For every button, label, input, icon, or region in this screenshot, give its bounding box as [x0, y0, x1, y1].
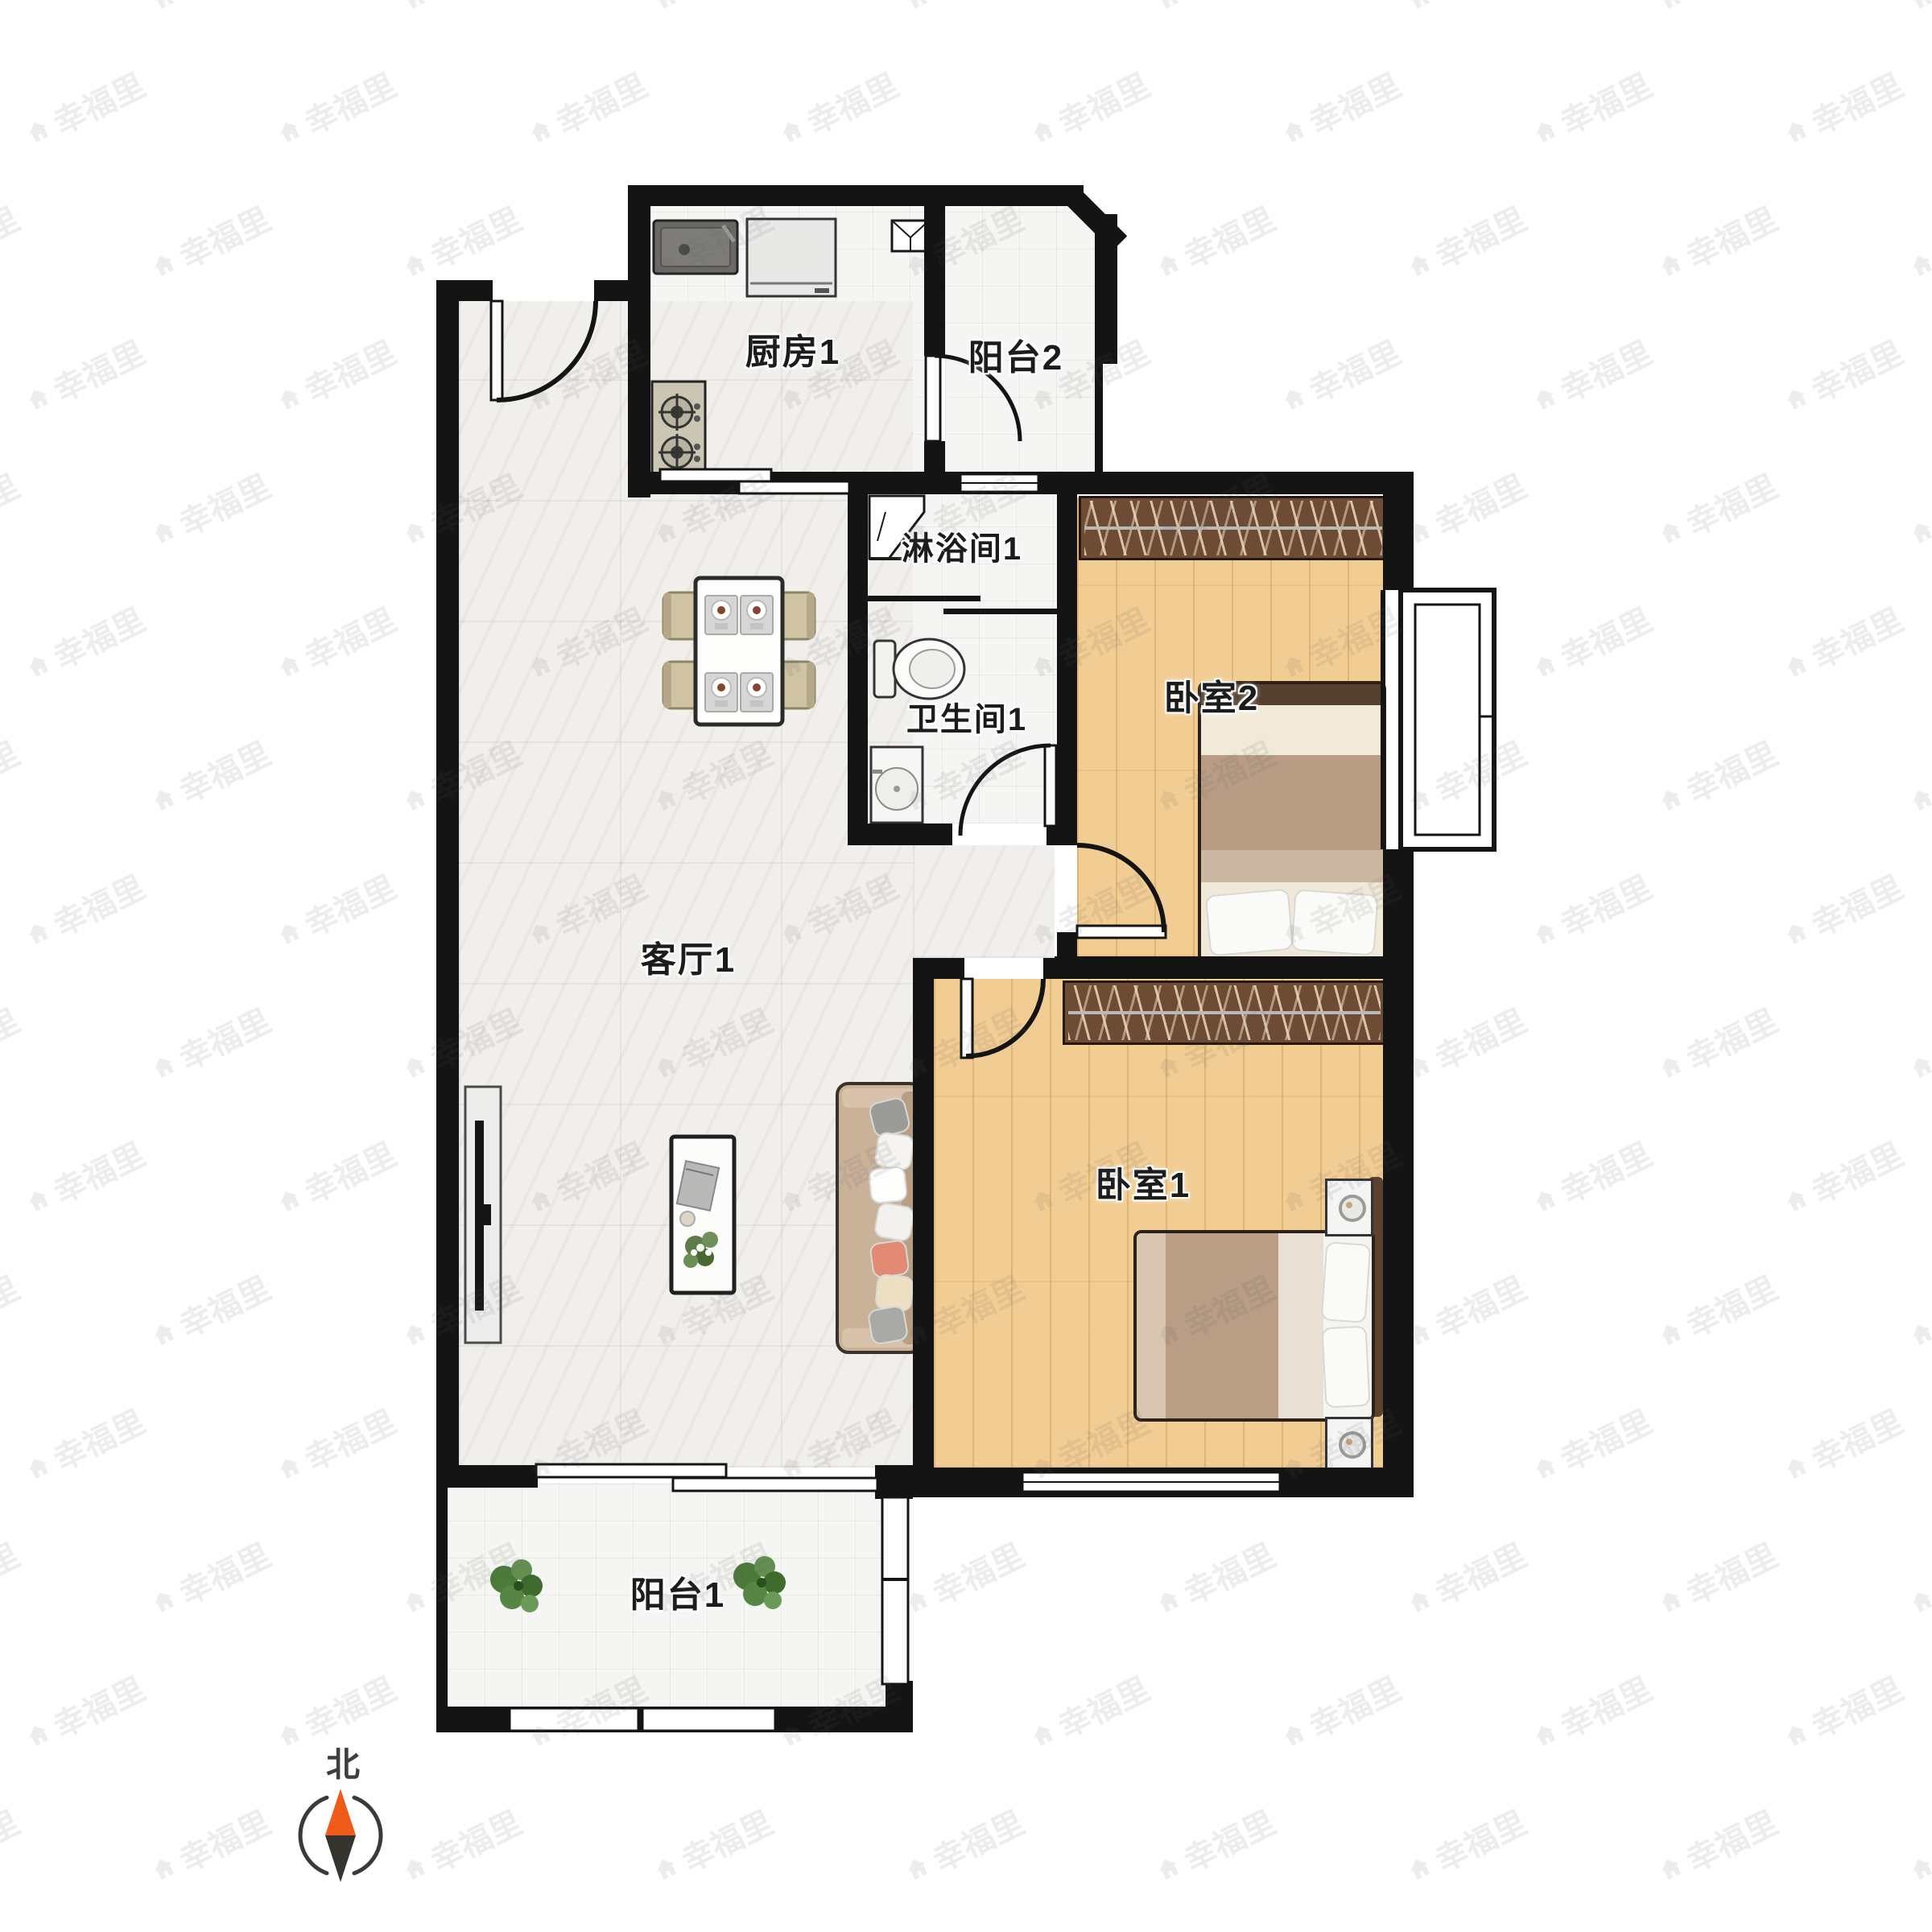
bed-pillow	[1205, 889, 1294, 957]
house-icon	[1654, 1852, 1686, 1885]
house-icon	[524, 115, 556, 147]
watermark-tile: 幸福里	[1398, 460, 1533, 558]
watermark-tile: 幸福里	[268, 327, 402, 424]
house-icon	[22, 382, 54, 415]
watermark-tile: 幸福里	[1273, 1663, 1407, 1761]
watermark-text: 幸福里	[1677, 728, 1784, 812]
nightstand-knob-dot	[1346, 1439, 1352, 1445]
watermark-text: 幸福里	[1928, 193, 1932, 278]
wall-balcony2-right	[1095, 214, 1117, 364]
wall-bedrooms-divider	[1055, 956, 1414, 979]
house-icon	[398, 783, 431, 815]
watermark-tile: 幸福里	[1147, 1529, 1282, 1627]
watermark-text: 幸福里	[1174, 0, 1282, 10]
house-icon	[1026, 115, 1059, 147]
wall-balcony1-bottom	[436, 1707, 913, 1732]
watermark-text: 幸福里	[1426, 460, 1533, 545]
watermark-text: 幸福里	[1426, 193, 1533, 278]
watermark-tile: 幸福里	[1022, 60, 1156, 157]
watermark-text: 幸福里	[0, 193, 27, 278]
nightstand	[1325, 1179, 1373, 1236]
watermark-text: 幸福里	[421, 1797, 528, 1881]
house-icon	[22, 917, 54, 949]
wall-living-bottom-corner	[875, 1465, 913, 1499]
house-icon	[22, 1451, 54, 1484]
house-icon	[1403, 783, 1435, 815]
watermark-tile: 幸福里	[770, 60, 905, 157]
watermark-tile: 幸福里	[645, 0, 779, 24]
house-icon	[1529, 650, 1561, 682]
house-icon	[1780, 917, 1812, 949]
watermark-tile: 幸福里	[0, 193, 27, 291]
house-icon	[1905, 516, 1932, 548]
watermark-tile: 幸福里	[1649, 728, 1784, 825]
watermark-text: 幸福里	[170, 995, 277, 1080]
house-icon	[147, 1852, 180, 1885]
watermark-tile: 幸福里	[1775, 327, 1909, 424]
compass-needle-north	[325, 1789, 356, 1835]
watermark-tile: 幸福里	[268, 60, 402, 157]
house-icon	[1905, 783, 1932, 815]
watermark-tile: 幸福里	[142, 1529, 277, 1627]
house-icon	[1780, 1451, 1812, 1484]
watermark-text: 幸福里	[1802, 1396, 1909, 1480]
watermark-text: 幸福里	[0, 1262, 27, 1347]
wall-bathroom-bottom-left	[848, 824, 952, 845]
watermark-tile: 幸福里	[142, 1262, 277, 1360]
watermark-text: 幸福里	[1677, 995, 1784, 1080]
watermark-tile: 幸福里	[1901, 728, 1932, 825]
watermark-text: 幸福里	[547, 60, 654, 144]
room-label-bathroom: 卫生间1	[906, 693, 1027, 740]
watermark-tile: 幸福里	[1524, 327, 1658, 424]
watermark-text: 幸福里	[672, 0, 779, 10]
watermark-text: 幸福里	[1300, 327, 1407, 411]
room-label-kitchen: 厨房1	[745, 323, 840, 374]
watermark-tile: 幸福里	[1901, 193, 1932, 291]
watermark-tile: 幸福里	[0, 995, 27, 1092]
compass-ring	[354, 1798, 381, 1873]
watermark-tile: 幸福里	[1901, 1262, 1932, 1360]
house-icon	[1403, 249, 1435, 281]
watermark-text: 幸福里	[1049, 60, 1156, 144]
watermark-text: 幸福里	[1928, 1262, 1932, 1347]
watermark-text: 幸福里	[44, 327, 151, 411]
house-icon	[1905, 1051, 1932, 1083]
watermark-text: 幸福里	[672, 1797, 779, 1881]
house-icon	[1403, 0, 1435, 14]
bedroom1-wardrobe	[1063, 980, 1386, 1045]
watermark-tile: 幸福里	[142, 1797, 277, 1894]
watermark-tile: 幸福里	[17, 1663, 151, 1761]
house-icon	[273, 382, 305, 415]
watermark-tile: 幸福里	[0, 1797, 27, 1894]
house-icon	[1278, 382, 1310, 415]
watermark-text: 幸福里	[1928, 728, 1932, 812]
house-icon	[1529, 1184, 1561, 1216]
house-icon	[775, 115, 807, 147]
watermark-text: 幸福里	[295, 1129, 402, 1213]
wall-kitchen-balcony2-stub	[924, 441, 945, 473]
bedroom1-bed	[1133, 1230, 1375, 1422]
house-icon	[1152, 249, 1184, 281]
watermark-tile: 幸福里	[17, 1129, 151, 1226]
wall-right-upper	[1383, 483, 1414, 590]
wardrobe-rail	[1084, 526, 1382, 530]
wardrobe-rail	[1068, 1011, 1381, 1014]
watermark-tile: 幸福里	[1649, 995, 1784, 1092]
watermark-text: 幸福里	[170, 1797, 277, 1881]
house-icon	[1654, 249, 1686, 281]
house-icon	[1654, 783, 1686, 815]
watermark-text: 幸福里	[1426, 995, 1533, 1080]
watermark-tile: 幸福里	[17, 327, 151, 424]
watermark-tile: 幸福里	[1398, 0, 1533, 24]
watermark-tile: 幸福里	[1649, 0, 1784, 24]
house-icon	[22, 650, 54, 682]
watermark-text: 幸福里	[44, 1663, 151, 1748]
house-icon	[1905, 0, 1932, 14]
room-label-living: 客厅1	[641, 931, 736, 982]
house-icon	[1905, 1852, 1932, 1885]
house-icon	[273, 650, 305, 682]
watermark-text: 幸福里	[44, 60, 151, 144]
watermark-tile: 幸福里	[896, 1797, 1030, 1894]
watermark-text: 幸福里	[1551, 861, 1658, 946]
compass-north-label: 北	[326, 1738, 360, 1787]
watermark-text: 幸福里	[1677, 1797, 1784, 1881]
watermark-tile: 幸福里	[394, 0, 528, 24]
watermark-tile: 幸福里	[268, 1129, 402, 1226]
wall-bedroom1-left	[913, 958, 934, 1470]
wall-kitchen-balcony2-divider	[924, 206, 945, 356]
watermark-text: 幸福里	[1426, 1529, 1533, 1614]
watermark-tile: 幸福里	[1649, 1262, 1784, 1360]
watermark-tile: 幸福里	[1398, 193, 1533, 291]
watermark-text: 幸福里	[1049, 1663, 1156, 1748]
watermark-tile: 幸福里	[0, 0, 27, 24]
house-icon	[901, 1585, 933, 1617]
watermark-text: 幸福里	[421, 0, 528, 10]
house-icon	[22, 1719, 54, 1751]
house-icon	[1403, 1852, 1435, 1885]
watermark-text: 幸福里	[170, 193, 277, 278]
watermark-text: 幸福里	[1300, 1663, 1407, 1748]
watermark-tile: 幸福里	[1775, 1396, 1909, 1493]
watermark-text: 幸福里	[170, 728, 277, 812]
watermark-tile: 幸福里	[142, 193, 277, 291]
room-label-bedroom1: 卧室1	[1096, 1156, 1191, 1207]
watermark-text: 幸福里	[1802, 594, 1909, 679]
house-icon	[1654, 516, 1686, 548]
house-icon	[147, 783, 180, 815]
nightstand-knob-dot	[1346, 1202, 1352, 1208]
wall-balcony1-left	[436, 1483, 448, 1724]
watermark-text: 幸福里	[1928, 460, 1932, 545]
house-icon	[1780, 1719, 1812, 1751]
compass-ring	[300, 1798, 327, 1873]
watermark-text: 幸福里	[1802, 861, 1909, 946]
watermark-text: 幸福里	[44, 1396, 151, 1480]
watermark-tile: 幸福里	[394, 1797, 528, 1894]
wall-balcony1-right-corner	[885, 1681, 913, 1732]
watermark-tile: 幸福里	[1649, 460, 1784, 558]
watermark-tile: 幸福里	[896, 1529, 1030, 1627]
wall-balcony2-railing	[1095, 364, 1103, 472]
bed-blanket	[1137, 1233, 1166, 1418]
watermark-text: 幸福里	[1300, 60, 1407, 144]
bed-blanket	[1201, 755, 1383, 850]
watermark-text: 幸福里	[1426, 0, 1533, 10]
house-icon	[1905, 249, 1932, 281]
wall-top	[628, 185, 1084, 206]
bedroom2-wardrobe	[1079, 496, 1388, 560]
watermark-text: 幸福里	[1174, 1797, 1282, 1881]
watermark-text: 幸福里	[0, 0, 27, 10]
watermark-tile: 幸福里	[268, 861, 402, 959]
house-icon	[1905, 1318, 1932, 1350]
compass-needle-south	[325, 1835, 356, 1882]
house-icon	[1654, 1585, 1686, 1617]
watermark-text: 幸福里	[1677, 193, 1784, 278]
house-icon	[147, 249, 180, 281]
watermark-tile: 幸福里	[1398, 1262, 1533, 1360]
house-icon	[398, 1318, 431, 1350]
watermark-text: 幸福里	[1928, 1529, 1932, 1614]
house-icon	[273, 115, 305, 147]
watermark-text: 幸福里	[923, 0, 1030, 10]
watermark-text: 幸福里	[1551, 60, 1658, 144]
house-icon	[22, 115, 54, 147]
watermark-tile: 幸福里	[1775, 60, 1909, 157]
watermark-text: 幸福里	[295, 861, 402, 946]
watermark-tile: 幸福里	[1524, 861, 1658, 959]
bed-blanket	[1278, 1233, 1323, 1418]
bed-pillow	[1321, 1326, 1370, 1409]
watermark-tile: 幸福里	[1524, 1129, 1658, 1226]
house-icon	[398, 1852, 431, 1885]
watermark-tile: 幸福里	[1901, 0, 1932, 24]
house-icon	[1529, 1719, 1561, 1751]
watermark-tile: 幸福里	[1775, 1663, 1909, 1761]
watermark-tile: 幸福里	[17, 1396, 151, 1493]
house-icon	[1152, 1852, 1184, 1885]
wall-shower-left	[848, 472, 868, 845]
wall-living-bottom-left	[448, 1465, 538, 1488]
house-icon	[650, 1852, 682, 1885]
house-icon	[22, 1184, 54, 1216]
house-icon	[1152, 0, 1184, 14]
room-label-balcony1: 阳台1	[630, 1566, 725, 1617]
watermark-tile: 幸福里	[1398, 995, 1533, 1092]
watermark-text: 幸福里	[1551, 327, 1658, 411]
watermark-text: 幸福里	[295, 594, 402, 679]
house-icon	[147, 0, 180, 14]
wall-right-lower	[1383, 849, 1414, 1470]
bed-pillow	[1321, 1241, 1372, 1323]
watermark-text: 幸福里	[1802, 327, 1909, 411]
watermark-tile: 幸福里	[1273, 327, 1407, 424]
watermark-tile: 幸福里	[142, 0, 277, 24]
watermark-text: 幸福里	[0, 1529, 27, 1614]
watermark-tile: 幸福里	[0, 1529, 27, 1627]
house-icon	[650, 0, 682, 14]
watermark-tile: 幸福里	[1273, 60, 1407, 157]
sofa-pillow	[873, 1201, 916, 1242]
watermark-tile: 幸福里	[1649, 1529, 1784, 1627]
house-icon	[398, 249, 431, 281]
watermark-text: 幸福里	[1551, 1129, 1658, 1213]
house-icon	[273, 1184, 305, 1216]
house-icon	[273, 1719, 305, 1751]
watermark-text: 幸福里	[1802, 60, 1909, 144]
watermark-text: 幸福里	[170, 1262, 277, 1347]
nightstand-knob	[1339, 1431, 1366, 1459]
house-icon	[1905, 1585, 1932, 1617]
wall-kitchen-left	[628, 185, 650, 497]
watermark-text: 幸福里	[44, 594, 151, 679]
watermark-text: 幸福里	[1677, 0, 1784, 10]
watermark-text: 幸福里	[1677, 460, 1784, 545]
nightstand-knob	[1339, 1195, 1366, 1222]
house-icon	[901, 1852, 933, 1885]
watermark-tile: 幸福里	[0, 1262, 27, 1360]
watermark-tile: 幸福里	[0, 460, 27, 558]
sofa	[836, 1082, 923, 1354]
watermark-tile: 幸福里	[394, 193, 528, 291]
nightstand	[1325, 1417, 1373, 1472]
house-icon	[398, 1585, 431, 1617]
watermark-tile: 幸福里	[268, 1396, 402, 1493]
house-icon	[147, 1318, 180, 1350]
bed-blanket	[1201, 850, 1383, 882]
house-icon	[1780, 382, 1812, 415]
watermark-tile: 幸福里	[0, 728, 27, 825]
watermark-tile: 幸福里	[1524, 1396, 1658, 1493]
watermark-tile: 幸福里	[1398, 728, 1533, 825]
watermark-text: 幸福里	[1426, 728, 1533, 812]
watermark-tile: 幸福里	[1524, 594, 1658, 691]
wall-living-left	[436, 280, 459, 1488]
watermark-text: 幸福里	[1551, 594, 1658, 679]
house-icon	[1780, 1184, 1812, 1216]
watermark-text: 幸福里	[0, 728, 27, 812]
watermark-text: 幸福里	[923, 1797, 1030, 1881]
bed-pillow	[1290, 889, 1378, 956]
sofa-pillow	[869, 1239, 910, 1279]
house-icon	[1780, 650, 1812, 682]
watermark-text: 幸福里	[295, 327, 402, 411]
sofa-pillow	[868, 1166, 908, 1205]
house-icon	[1278, 115, 1310, 147]
watermark-text: 幸福里	[1551, 1663, 1658, 1748]
house-icon	[398, 516, 431, 548]
house-icon	[147, 1051, 180, 1083]
watermark-text: 幸福里	[44, 1129, 151, 1213]
watermark-tile: 幸福里	[1524, 1663, 1658, 1761]
watermark-tile: 幸福里	[1775, 594, 1909, 691]
watermark-tile: 幸福里	[1901, 1529, 1932, 1627]
room-label-bedroom2: 卧室2	[1164, 669, 1259, 720]
watermark-tile: 幸福里	[1022, 1663, 1156, 1761]
watermark-text: 幸福里	[170, 460, 277, 545]
watermark-text: 幸福里	[0, 1797, 27, 1881]
watermark-text: 幸福里	[1677, 1529, 1784, 1614]
watermark-text: 幸福里	[923, 1529, 1030, 1614]
watermark-tile: 幸福里	[1775, 861, 1909, 959]
watermark-text: 幸福里	[421, 193, 528, 278]
house-icon	[1529, 115, 1561, 147]
house-icon	[1654, 1318, 1686, 1350]
house-icon	[1654, 0, 1686, 14]
watermark-tile: 幸福里	[17, 60, 151, 157]
wall-bedroom1-top-right	[1043, 958, 1056, 979]
balcony1-right-window	[882, 1497, 908, 1684]
house-icon	[1780, 115, 1812, 147]
watermark-text: 幸福里	[798, 60, 905, 144]
house-icon	[901, 0, 933, 14]
watermark-text: 幸福里	[1426, 1262, 1533, 1347]
watermark-text: 幸福里	[295, 60, 402, 144]
watermark-text: 幸福里	[295, 1396, 402, 1480]
watermark-text: 幸福里	[1802, 1663, 1909, 1748]
watermark-tile: 幸福里	[1147, 193, 1282, 291]
watermark-tile: 幸福里	[1147, 0, 1282, 24]
watermark-text: 幸福里	[0, 460, 27, 545]
watermark-text: 幸福里	[170, 1529, 277, 1614]
wall-bedroom1-bottom	[875, 1468, 1414, 1497]
watermark-tile: 幸福里	[1649, 1797, 1784, 1894]
watermark-tile: 幸福里	[1901, 1797, 1932, 1894]
house-icon	[147, 516, 180, 548]
watermark-text: 幸福里	[295, 1663, 402, 1748]
watermark-text: 幸福里	[1802, 1129, 1909, 1213]
watermark-text: 幸福里	[0, 995, 27, 1080]
house-icon	[1278, 1719, 1310, 1751]
watermark-tile: 幸福里	[1775, 1129, 1909, 1226]
corridor-floor	[913, 845, 1055, 958]
house-icon	[1026, 1719, 1059, 1751]
watermark-tile: 幸福里	[645, 1797, 779, 1894]
watermark-tile: 幸福里	[519, 60, 654, 157]
house-icon	[273, 1451, 305, 1484]
bedroom2-bed	[1198, 681, 1386, 963]
wall-mid-horizontal	[628, 472, 1414, 494]
watermark-text: 幸福里	[1677, 1262, 1784, 1347]
watermark-text: 幸福里	[1928, 995, 1932, 1080]
sofa-pillow	[867, 1304, 910, 1345]
house-icon	[1529, 917, 1561, 949]
watermark-tile: 幸福里	[142, 728, 277, 825]
sofa-pillow	[873, 1131, 915, 1171]
wall-bedroom2-left	[1057, 472, 1077, 845]
watermark-text: 幸福里	[1426, 1797, 1533, 1881]
house-icon	[147, 1585, 180, 1617]
watermark-tile: 幸福里	[142, 460, 277, 558]
house-icon	[1529, 1451, 1561, 1484]
house-icon	[1152, 1585, 1184, 1617]
house-icon	[1403, 1585, 1435, 1617]
watermark-tile: 幸福里	[1901, 995, 1932, 1092]
watermark-tile: 幸福里	[142, 995, 277, 1092]
bed-blanket	[1166, 1233, 1278, 1418]
wall-bedroom2-left-stub	[1057, 932, 1077, 960]
floorplan-canvas: 厨房1 阳台2 淋浴间1 卫生间1 卧室2 客厅1 卧室1 阳台1 北 幸福里幸…	[0, 0, 1932, 1932]
watermark-text: 幸福里	[1174, 193, 1282, 278]
house-icon	[398, 0, 431, 14]
watermark-text: 幸福里	[1551, 1396, 1658, 1480]
house-icon	[273, 917, 305, 949]
